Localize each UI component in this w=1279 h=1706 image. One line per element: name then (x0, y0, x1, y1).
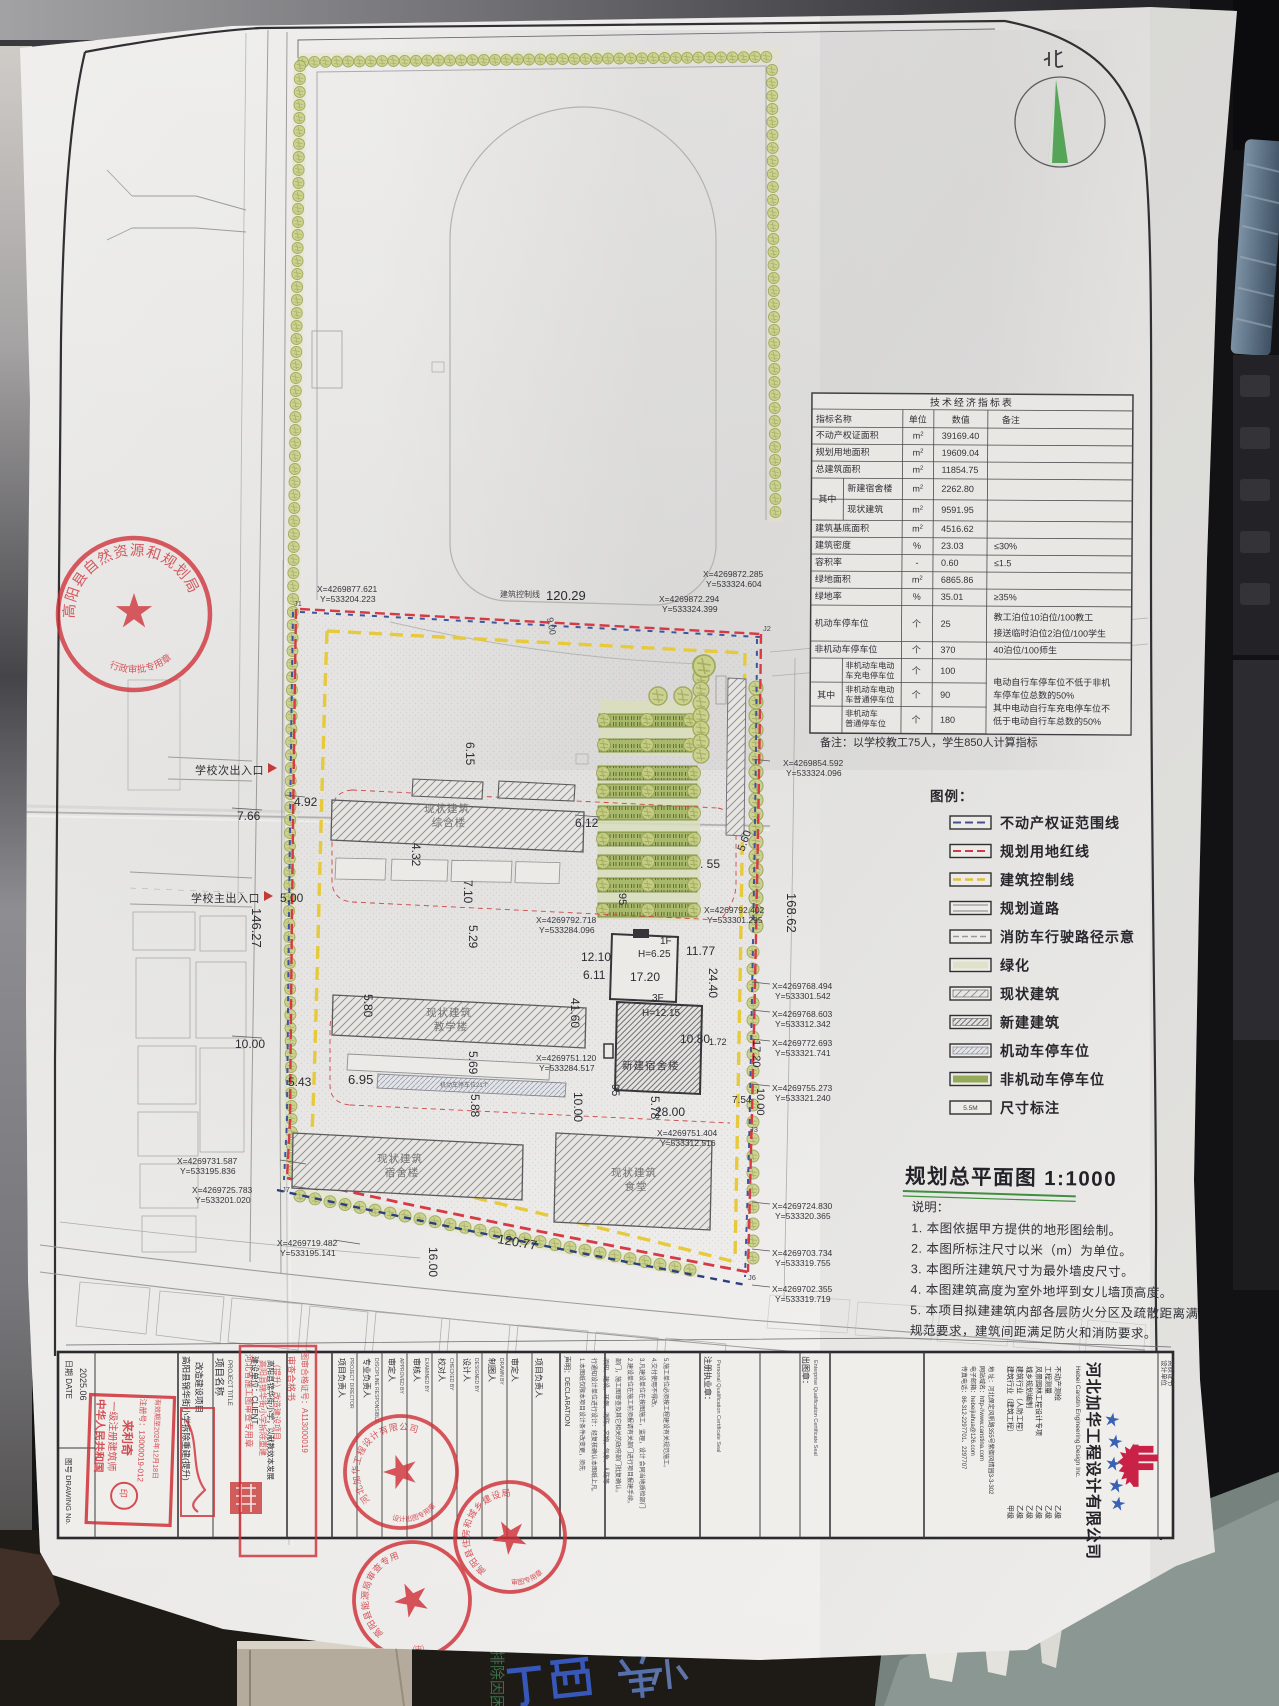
svg-text:教工泊位10泊位/100教工: 教工泊位10泊位/100教工 (994, 611, 1094, 623)
svg-text:95: 95 (616, 893, 628, 905)
svg-text:6.95: 6.95 (348, 1072, 373, 1087)
svg-text:现状建筑: 现状建筑 (1000, 986, 1060, 1002)
svg-text:印: 印 (118, 1489, 129, 1498)
svg-text:J3: J3 (750, 1125, 758, 1134)
svg-text:出图章：: 出图章： (801, 1356, 811, 1388)
svg-text:X=4269703.734: X=4269703.734 (772, 1248, 833, 1258)
svg-text:专业负责人: 专业负责人 (362, 1358, 372, 1398)
svg-text:Y=533195.836: Y=533195.836 (180, 1166, 236, 1176)
svg-text:100: 100 (940, 666, 955, 676)
svg-text:12.10: 12.10 (581, 950, 611, 964)
svg-text:16.00: 16.00 (426, 1247, 440, 1277)
svg-text:2. 本图所标注尺寸以米（m）为单位。: 2. 本图所标注尺寸以米（m）为单位。 (911, 1241, 1133, 1259)
svg-text:车充电停车位: 车充电停车位 (845, 670, 894, 680)
svg-text:-: - (915, 558, 918, 568)
svg-text:教学楼: 教学楼 (434, 1020, 469, 1033)
svg-text:≤1.5: ≤1.5 (994, 558, 1012, 568)
svg-text:绿地率: 绿地率 (815, 590, 842, 601)
svg-text:声明：DECLARATION: 声明：DECLARATION (563, 1356, 572, 1426)
svg-text:Y=533321.741: Y=533321.741 (775, 1048, 831, 1058)
svg-text:J7: J7 (282, 1185, 290, 1194)
svg-text:Y=533324.399: Y=533324.399 (662, 604, 718, 614)
svg-text:X=4269719.482: X=4269719.482 (277, 1238, 338, 1248)
svg-text:Y=533284.096: Y=533284.096 (539, 925, 595, 935)
svg-text:X=4269872.285: X=4269872.285 (703, 569, 764, 579)
svg-text:非机动车: 非机动车 (845, 708, 878, 718)
svg-text:4.92: 4.92 (294, 795, 318, 809)
svg-text:180: 180 (940, 715, 955, 725)
svg-text:1.72: 1.72 (709, 1037, 727, 1047)
svg-text:设计人: 设计人 (462, 1358, 472, 1382)
svg-text:乙级: 乙级 (1044, 1505, 1053, 1519)
svg-text:机动车停车位21个: 机动车停车位21个 (440, 1081, 489, 1089)
svg-text:X=4269768.494: X=4269768.494 (772, 981, 833, 991)
svg-text:建筑基底面积: 建筑基底面积 (815, 522, 869, 533)
svg-text:5.80: 5.80 (361, 994, 375, 1018)
svg-text:容积率: 容积率 (815, 556, 842, 567)
svg-text:审定人: 审定人 (387, 1358, 397, 1382)
svg-text:7.66: 7.66 (237, 809, 261, 823)
svg-text:风景园林工程设计专项: 风景园林工程设计专项 (1035, 1366, 1044, 1436)
svg-text:建筑行业（建筑工程）: 建筑行业（建筑工程） (1006, 1366, 1015, 1436)
svg-text:19609.04: 19609.04 (942, 448, 980, 458)
svg-text:宿舍楼: 宿舍楼 (385, 1166, 420, 1179)
svg-text:X=4269772.693: X=4269772.693 (772, 1038, 833, 1048)
svg-text:6.11: 6.11 (583, 968, 606, 982)
svg-text:乙级: 乙级 (1016, 1505, 1025, 1519)
svg-text:%: % (913, 541, 921, 551)
svg-text:9591.95: 9591.95 (941, 505, 974, 515)
svg-text:J1: J1 (294, 599, 302, 608)
svg-text:6.12: 6.12 (575, 816, 599, 830)
svg-text:规划总平面图 1:1000: 规划总平面图 1:1000 (905, 1164, 1117, 1191)
svg-text:X=4269768.603: X=4269768.603 (772, 1009, 833, 1019)
svg-text:X=4269751.120: X=4269751.120 (536, 1053, 597, 1063)
svg-text:现状建筑: 现状建筑 (847, 503, 883, 514)
svg-text:食堂: 食堂 (625, 1180, 648, 1193)
svg-text:图例：: 图例： (930, 788, 974, 804)
svg-text:审核人: 审核人 (412, 1358, 422, 1382)
svg-text:EXAMINED BY: EXAMINED BY (423, 1358, 429, 1393)
svg-text:X=4269724.830: X=4269724.830 (772, 1201, 833, 1211)
svg-text:X=4269702.355: X=4269702.355 (772, 1284, 833, 1294)
svg-text:120.29: 120.29 (546, 588, 586, 603)
svg-text:新建宿舍楼: 新建宿舍楼 (847, 482, 892, 493)
svg-text:总建筑面积: 总建筑面积 (816, 463, 861, 474)
svg-text:（提升）改造建设项目: （提升）改造建设项目 (272, 1360, 282, 1440)
svg-text:Y=533204.223: Y=533204.223 (320, 594, 376, 604)
svg-text:1.本图纸仅限本项目设计条件改变更，须先: 1.本图纸仅限本项目设计条件改变更，须先 (578, 1358, 586, 1471)
svg-text:2025.06: 2025.06 (78, 1368, 88, 1401)
svg-text:个: 个 (911, 715, 920, 725)
svg-text:H=6.25: H=6.25 (638, 949, 671, 960)
svg-text:规划用地红线: 规划用地红线 (1000, 844, 1090, 860)
svg-text:项目负责人: 项目负责人 (337, 1358, 347, 1398)
svg-text:图号 DRAWING No.: 图号 DRAWING No. (64, 1458, 73, 1525)
svg-text:X=4269877.621: X=4269877.621 (317, 584, 378, 594)
svg-text:其中电动自行车充电停车位不: 其中电动自行车充电停车位不 (993, 702, 1110, 714)
svg-text:X=4269751.404: X=4269751.404 (657, 1128, 718, 1138)
svg-text:25: 25 (941, 619, 951, 629)
svg-text:个: 个 (912, 666, 921, 676)
svg-text:单位: 单位 (909, 414, 927, 425)
svg-text:高阳县锦华街小学拆除重建(提升): 高阳县锦华街小学拆除重建(提升) (181, 1356, 191, 1481)
svg-text:2.建设单位在施工前须报请有关部门进行项目报建手续。: 2.建设单位在施工前须报请有关部门进行项目报建手续。 (626, 1358, 634, 1507)
svg-text:非机动车停车位: 非机动车停车位 (814, 643, 877, 654)
svg-text:1. 本图依据甲方提供的地形图绘制。: 1. 本图依据甲方提供的地形图绘制。 (911, 1220, 1122, 1238)
svg-text:日期 DATE: 日期 DATE (64, 1360, 73, 1399)
svg-text:数值: 数值 (952, 414, 970, 425)
svg-text:17.20: 17.20 (630, 970, 660, 984)
svg-text:新建建筑: 新建建筑 (1000, 1015, 1060, 1031)
svg-text:车停车位总数的50%: 车停车位总数的50% (993, 689, 1074, 700)
svg-text:建筑控制线: 建筑控制线 (1000, 872, 1075, 888)
svg-text:2262.80: 2262.80 (941, 484, 974, 494)
svg-text:X=4269725.783: X=4269725.783 (192, 1185, 253, 1195)
svg-text:规划道路: 规划道路 (1000, 901, 1060, 917)
svg-text:Y=533320.365: Y=533320.365 (775, 1211, 831, 1221)
svg-text:7.10: 7.10 (461, 880, 475, 904)
svg-text:41.60: 41.60 (568, 998, 582, 1028)
svg-text:规划用地面积: 规划用地面积 (816, 446, 870, 457)
svg-text:PROJECT DIRECTOR: PROJECT DIRECTOR (348, 1358, 354, 1409)
svg-text:5.5M: 5.5M (963, 1105, 977, 1112)
svg-text:≤30%: ≤30% (994, 541, 1017, 551)
svg-text:Y=533321.240: Y=533321.240 (775, 1093, 831, 1103)
svg-text:11.77: 11.77 (686, 944, 715, 958)
svg-text:指标名称: 指标名称 (816, 413, 852, 424)
svg-text:APPROVED BY: APPROVED BY (398, 1358, 404, 1395)
svg-text:CHECKED BY: CHECKED BY (448, 1358, 454, 1391)
svg-text:40泊位/100师生: 40泊位/100师生 (993, 644, 1057, 655)
svg-text:X=4269792.718: X=4269792.718 (536, 915, 597, 925)
svg-text:. 55: . 55 (700, 857, 720, 871)
svg-text:370: 370 (940, 645, 955, 655)
svg-text:普通停车位: 普通停车位 (845, 718, 886, 728)
svg-text:17.20: 17.20 (750, 1040, 762, 1068)
svg-text:机动车停车位: 机动车停车位 (815, 617, 869, 628)
svg-text:甲级: 甲级 (1006, 1505, 1015, 1519)
svg-text:X=4269755.273: X=4269755.273 (772, 1083, 833, 1093)
svg-text:河北省施工图审查专用章: 河北省施工图审查专用章 (244, 1354, 254, 1448)
svg-text:3F: 3F (652, 993, 664, 1004)
svg-text:Y=533319.719: Y=533319.719 (775, 1294, 831, 1304)
svg-text:Hebei Canstin Engineering Desi: Hebei Canstin Engineering Design Inc. (1074, 1366, 1081, 1478)
svg-text:J2: J2 (763, 624, 771, 633)
svg-text:10.80: 10.80 (680, 1032, 710, 1046)
svg-text:39169.40: 39169.40 (942, 431, 980, 441)
svg-text:Y=533324.096: Y=533324.096 (786, 768, 842, 778)
svg-text:建筑控制线: 建筑控制线 (500, 589, 540, 599)
svg-text:低于电动自行车总数的50%: 低于电动自行车总数的50% (993, 715, 1101, 727)
svg-text:图审合格证号：A113000019: 图审合格证号：A113000019 (300, 1352, 310, 1453)
svg-text:168.62: 168.62 (784, 893, 799, 933)
svg-text:资质证书: 资质证书 (1167, 1360, 1176, 1387)
svg-text:非机动车电动: 非机动车电动 (845, 684, 894, 694)
svg-text:5.43: 5.43 (288, 1075, 312, 1089)
svg-text:23.03: 23.03 (941, 541, 964, 551)
svg-text:5.29: 5.29 (466, 925, 480, 949)
svg-text:7.54: 7.54 (732, 1095, 752, 1106)
svg-text:24.40: 24.40 (706, 968, 720, 998)
svg-text:6865.86: 6865.86 (941, 575, 974, 585)
svg-text:学校主出入口: 学校主出入口 (191, 891, 260, 905)
svg-text:部门，施工图审查及其它相关的政府部门批复确认。: 部门，施工图审查及其它相关的政府部门批复确认。 (614, 1358, 622, 1496)
svg-text:乙级: 乙级 (1054, 1505, 1063, 1519)
svg-text:95: 95 (609, 1084, 621, 1096)
svg-text:个: 个 (912, 690, 921, 700)
svg-text:学校次出入口: 学校次出入口 (195, 763, 264, 777)
svg-text:接送临时泊位2泊位/100学生: 接送临时泊位2泊位/100学生 (994, 627, 1107, 639)
svg-text:Y=533301.542: Y=533301.542 (775, 991, 831, 1001)
svg-text:Y=533312.342: Y=533312.342 (775, 1019, 831, 1029)
svg-text:个: 个 (912, 645, 921, 655)
svg-text:现状建筑: 现状建筑 (377, 1152, 423, 1165)
svg-text:传真电话：86-312-2297701、2297707: 传真电话：86-312-2297701、2297707 (960, 1366, 968, 1470)
svg-text:非机动车停车位: 非机动车停车位 (1000, 1072, 1105, 1088)
svg-text:电子邮箱：hebeijiahua@126.com: 电子邮箱：hebeijiahua@126.com (969, 1366, 977, 1456)
svg-text:≥35%: ≥35% (994, 592, 1017, 602)
svg-text:备注：以学校教工75人，学生850人计算指标: 备注：以学校教工75人，学生850人计算指标 (820, 735, 1038, 749)
svg-text:综合楼: 综合楼 (432, 816, 467, 829)
svg-text:不动产测绘: 不动产测绘 (1054, 1366, 1063, 1401)
svg-text:建筑行业（人防工程）: 建筑行业（人防工程） (1016, 1366, 1025, 1436)
svg-text:5.88: 5.88 (468, 1094, 482, 1118)
svg-text:J6: J6 (748, 1273, 756, 1282)
svg-text:X=4269854.592: X=4269854.592 (783, 758, 844, 768)
svg-text:个: 个 (912, 619, 921, 629)
svg-text:绿地面积: 绿地面积 (815, 573, 851, 584)
svg-text:建筑密度: 建筑密度 (815, 539, 851, 550)
svg-text:机动车停车位: 机动车停车位 (1000, 1043, 1090, 1059)
svg-text:5.78: 5.78 (648, 1096, 662, 1120)
svg-text:PROJECT TITLE: PROJECT TITLE (226, 1360, 232, 1406)
svg-text:4.交付使用不得改。: 4.交付使用不得改。 (650, 1358, 658, 1411)
svg-text:Y=533312.516: Y=533312.516 (660, 1138, 716, 1148)
svg-text:X=4269872.294: X=4269872.294 (659, 594, 720, 604)
svg-text:4.32: 4.32 (409, 843, 423, 867)
svg-text:审查合格书: 审查合格书 (286, 1356, 297, 1401)
svg-text:Y=533284.517: Y=533284.517 (539, 1063, 595, 1073)
svg-text:5.施工单位必须按工程建设有关规范施工。: 5.施工单位必须按工程建设有关规范施工。 (662, 1358, 670, 1471)
svg-text:现状建筑: 现状建筑 (424, 802, 470, 815)
svg-text:Enterprise Qualification Certi: Enterprise Qualification Certificate Sea… (812, 1360, 818, 1456)
svg-text:不动产权证面积: 不动产权证面积 (816, 429, 879, 440)
svg-text:X=4269731.587: X=4269731.587 (177, 1156, 238, 1166)
svg-text:新建宿舍楼: 新建宿舍楼 (622, 1059, 680, 1072)
svg-text:DRAWN BY: DRAWN BY (498, 1358, 504, 1385)
svg-text:H=12.15: H=12.15 (642, 1008, 681, 1019)
svg-text:Y=533195.141: Y=533195.141 (280, 1248, 336, 1258)
svg-text:X=4269792.402: X=4269792.402 (704, 905, 765, 915)
svg-text:中华人民共和国: 中华人民共和国 (92, 1399, 108, 1473)
svg-text:电动自行车停车位不低于非机: 电动自行车停车位不低于非机 (993, 676, 1110, 688)
svg-text:10.00: 10.00 (754, 1088, 766, 1116)
svg-text:车普通停车位: 车普通停车位 (845, 694, 894, 704)
svg-text:审定人: 审定人 (510, 1358, 520, 1382)
svg-text:1F: 1F (660, 936, 672, 947)
svg-text:现状建筑: 现状建筑 (611, 1166, 657, 1179)
svg-text:10.00: 10.00 (571, 1092, 585, 1122)
svg-text:备注: 备注 (1002, 414, 1020, 425)
svg-text:制图人: 制图人 (487, 1358, 497, 1382)
svg-text:其中: 其中 (817, 689, 835, 700)
svg-text:高阳县锦华街小学拆除重建: 高阳县锦华街小学拆除重建 (258, 1360, 268, 1456)
svg-text:146.27: 146.27 (249, 908, 264, 948)
svg-text:乙级: 乙级 (1025, 1505, 1034, 1519)
svg-text:Y=533319.755: Y=533319.755 (775, 1258, 831, 1268)
svg-text:3.凡建设单位在按图施工，监理，设计 会同当地质检部门: 3.凡建设单位在按图施工，监理，设计 会同当地质检部门 (638, 1358, 646, 1509)
svg-text:须知，建设，环保，消防，文物，气象，人防等: 须知，建设，环保，消防，文物，气象，人防等 (602, 1358, 610, 1484)
svg-text:地 址：河北保定风帆路355号紫御风情园3-3-302: 地 址：河北保定风帆路355号紫御风情园3-3-302 (987, 1366, 995, 1495)
svg-text:河北加华工程设计有限公司: 河北加华工程设计有限公司 (1084, 1362, 1103, 1560)
svg-text:90: 90 (940, 690, 950, 700)
svg-text:绿化: 绿化 (1000, 958, 1030, 974)
svg-text:其中: 其中 (818, 493, 836, 504)
svg-text:10.00: 10.00 (235, 1037, 265, 1051)
svg-text:技术经济指标表: 技术经济指标表 (930, 396, 1014, 410)
svg-text:Y=533301.295: Y=533301.295 (707, 915, 763, 925)
svg-text:3. 本图所注建筑尺寸为最外墙皮尺寸。: 3. 本图所注建筑尺寸为最外墙皮尺寸。 (911, 1261, 1135, 1279)
svg-text:校对人: 校对人 (437, 1358, 447, 1382)
svg-text:来利奇: 来利奇 (119, 1419, 135, 1457)
svg-text:不动产权证范围线: 不动产权证范围线 (1000, 815, 1120, 831)
svg-text:6.15: 6.15 (463, 742, 477, 766)
svg-text:35.01: 35.01 (941, 592, 964, 602)
svg-text:排除因困: 排除因困 (488, 1650, 505, 1706)
svg-text:5.69: 5.69 (466, 1051, 480, 1075)
svg-text:尺寸标注: 尺寸标注 (1000, 1100, 1060, 1116)
svg-text:工程测量: 工程测量 (1044, 1366, 1053, 1394)
svg-text:Y=533201.020: Y=533201.020 (195, 1195, 251, 1205)
svg-text:DESIGNED BY: DESIGNED BY (473, 1358, 479, 1393)
svg-text:说明：: 说明： (912, 1199, 950, 1215)
svg-text:改造建设项目: 改造建设项目 (194, 1362, 204, 1413)
svg-text:11854.75: 11854.75 (942, 465, 979, 475)
svg-text:4516.62: 4516.62 (941, 524, 974, 534)
svg-text:Personal Qualification Certifi: Personal Qualification Certificate Seal (715, 1360, 721, 1452)
svg-text:乙级: 乙级 (1035, 1505, 1044, 1519)
svg-text:项目负责人: 项目负责人 (534, 1358, 544, 1398)
svg-text:项目名称: 项目名称 (213, 1358, 225, 1397)
svg-text:5.00: 5.00 (280, 891, 304, 905)
svg-text:消防车行驶路径示意: 消防车行驶路径示意 (1000, 929, 1135, 945)
svg-text:网站域名：http-//www.canstina.com: 网站域名：http-//www.canstina.com (978, 1366, 986, 1461)
svg-text:Y=533324.604: Y=533324.604 (706, 579, 762, 589)
svg-text:非机动车电动: 非机动车电动 (845, 660, 894, 670)
svg-text:现状建筑: 现状建筑 (426, 1006, 472, 1019)
svg-text:注册执业章：: 注册执业章： (703, 1356, 713, 1404)
svg-text:0.60: 0.60 (941, 558, 959, 568)
svg-text:%: % (913, 592, 921, 602)
svg-text:行通知设计单位进行设计：经复核确认本图纸上凡,: 行通知设计单位进行设计：经复核确认本图纸上凡, (590, 1358, 598, 1492)
svg-text:DISCIPLINE RESPONSIBLE: DISCIPLINE RESPONSIBLE (373, 1358, 379, 1423)
svg-text:城乡规划编制: 城乡规划编制 (1025, 1366, 1034, 1408)
